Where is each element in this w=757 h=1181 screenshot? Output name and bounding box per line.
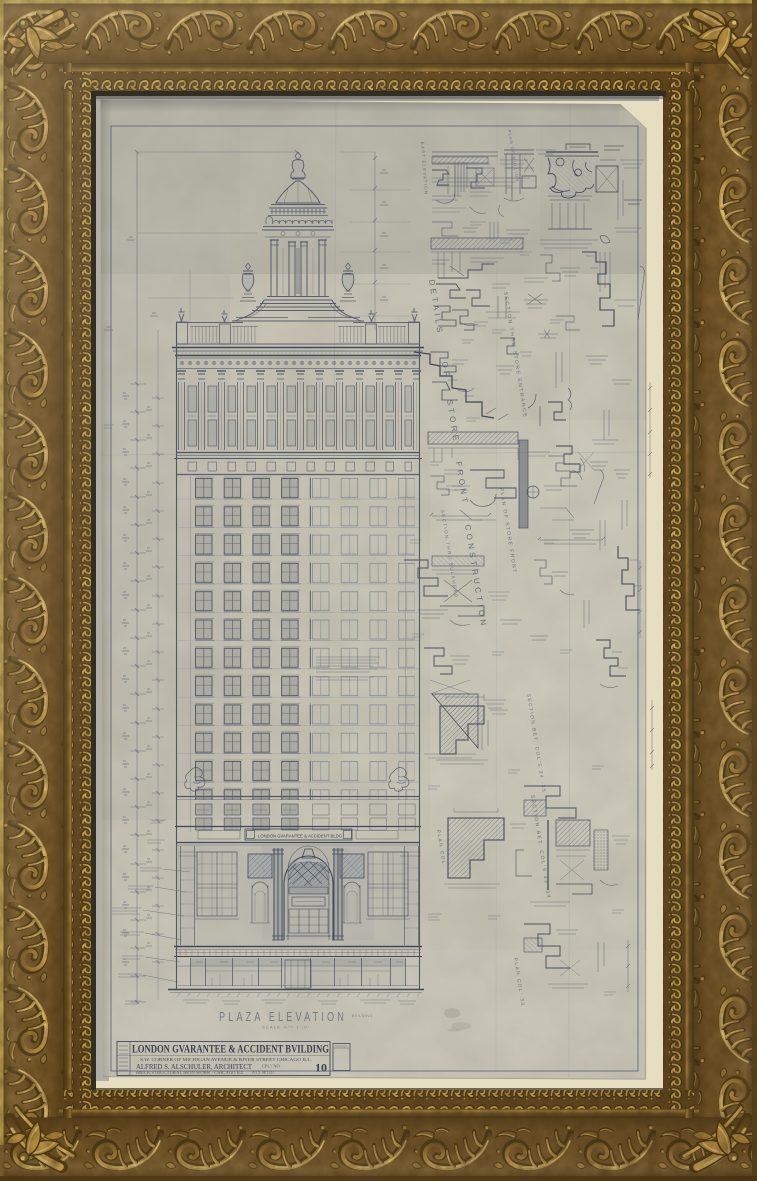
svg-text:LONDON GVARANTEE & ACCIDENT BV: LONDON GVARANTEE & ACCIDENT BVILDING [132,1044,329,1056]
svg-text:BRICK STRUCTURAL IRON WORK · C: BRICK STRUCTURAL IRON WORK · CHICAGO ILL [136,1071,244,1075]
svg-text:JULY 1ʣ 1921: JULY 1ʣ 1921 [252,1071,274,1075]
svg-text:S.W. CORNER OF MICHIGAN AVENUE: S.W. CORNER OF MICHIGAN AVENUE & RIVER S… [140,1057,312,1062]
svg-text:PLAZA ELEVATION: PLAZA ELEVATION [219,1010,347,1024]
svg-text:LONDON GVARANTEE & ACCIDENT BL: LONDON GVARANTEE & ACCIDENT BLDG [258,834,342,839]
svg-text:10: 10 [315,1061,327,1075]
svg-text:CPL′/ NO: CPL′/ NO [262,1064,280,1069]
svg-text:ALFRED S. ALSCHULER, ARCHITECT: ALFRED S. ALSCHULER, ARCHITECT [136,1064,253,1071]
svg-text:SCALE ⅛"= 1′-0": SCALE ⅛"= 1′-0" [262,1025,310,1030]
svg-text:BVILDING: BVILDING [352,1014,373,1018]
